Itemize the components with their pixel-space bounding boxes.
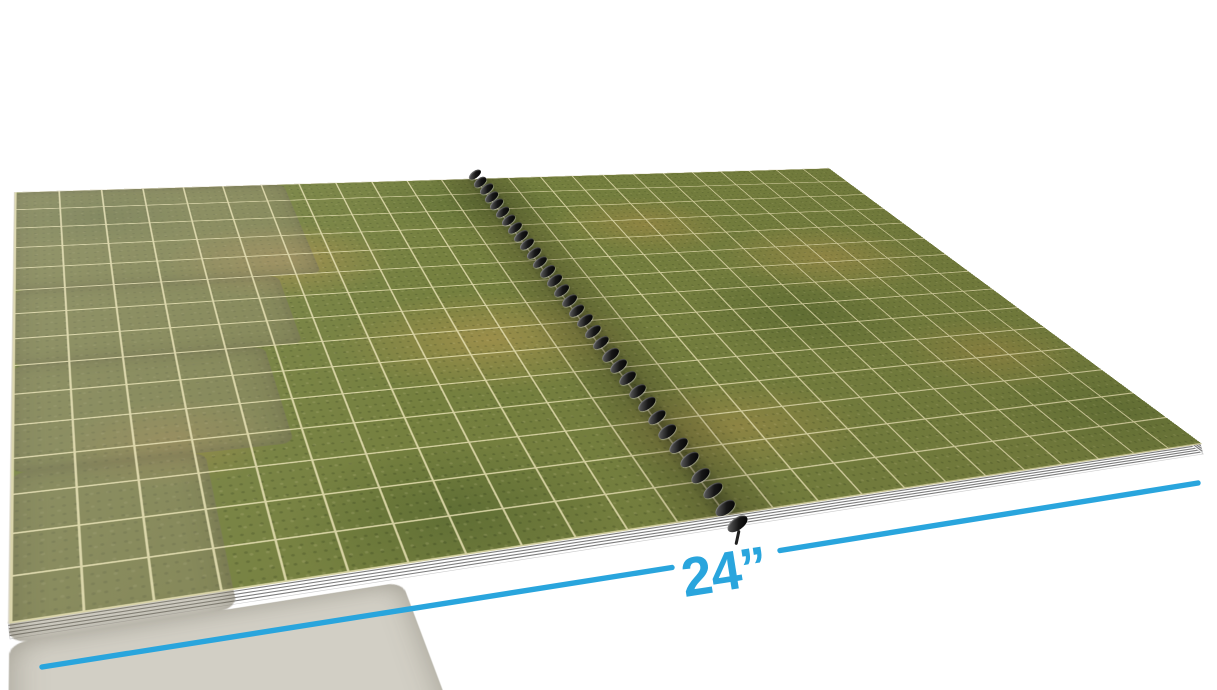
spine-shadow (9, 168, 1202, 623)
battle-map-spread (8, 168, 1202, 624)
product-image: 24” (0, 0, 1217, 690)
binding-wire-end (735, 530, 741, 545)
measurement-label: 24” (677, 534, 771, 609)
